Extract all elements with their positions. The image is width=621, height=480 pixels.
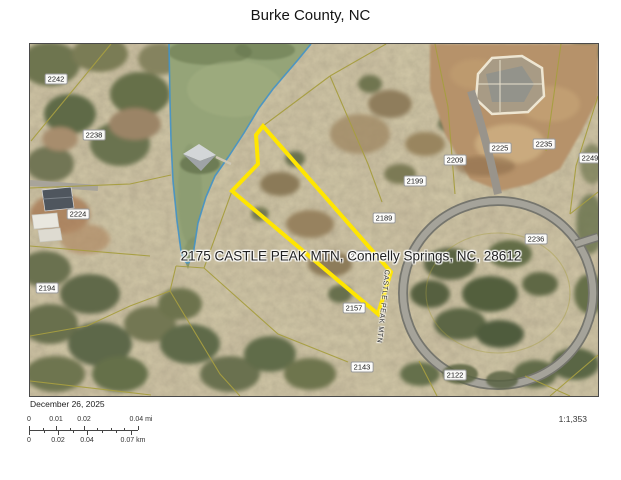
- parcel-label-2122: 2122: [444, 370, 467, 381]
- parcel-label-2235: 2235: [533, 139, 556, 150]
- scale-mi-3: 0.04 mi: [130, 416, 153, 423]
- scale-mi-1: 0.01: [49, 416, 63, 423]
- scale-mi-2: 0.02: [77, 416, 91, 423]
- scale-km-2: 0.04: [80, 437, 94, 444]
- parcel-label-2199: 2199: [404, 176, 427, 187]
- parcel-label-2242: 2242: [45, 74, 68, 85]
- parcel-label-2238: 2238: [83, 130, 106, 141]
- parcel-label-2194: 2194: [36, 283, 59, 294]
- parcel-label-2225: 2225: [489, 143, 512, 154]
- page-title: Burke County, NC: [0, 7, 621, 24]
- map-canvas[interactable]: 2242 2238 2224 2194 2209 2199 2189 2225 …: [29, 43, 599, 397]
- parcel-label-2143: 2143: [351, 362, 374, 373]
- parcel-label-2209: 2209: [444, 155, 467, 166]
- house-foundation: [476, 56, 544, 114]
- scale-mi-0: 0: [27, 416, 31, 423]
- map-artwork: [30, 44, 598, 396]
- scale-bar-line: [29, 430, 138, 431]
- parcel-label-2236: 2236: [525, 234, 548, 245]
- parcel-label-2157: 2157: [343, 303, 366, 314]
- map-date: December 26, 2025: [30, 399, 105, 409]
- scale-bar: 0 0.01 0.02 0.04 mi 0 0.02 0.04 0.07 km: [29, 416, 179, 448]
- page: { "title": "Burke County, NC", "map": { …: [0, 0, 621, 480]
- parcel-label-2224: 2224: [67, 209, 90, 220]
- parcel-label-2189: 2189: [373, 213, 396, 224]
- scale-km-1: 0.02: [51, 437, 65, 444]
- address-label: 2175 CASTLE PEAK MTN, Connelly Springs, …: [181, 249, 522, 264]
- scale-km-3: 0.07 km: [121, 437, 146, 444]
- scale-km-0: 0: [27, 437, 31, 444]
- parcel-label-2249: 2249: [579, 153, 599, 164]
- scale-ratio: 1:1,353: [527, 414, 587, 424]
